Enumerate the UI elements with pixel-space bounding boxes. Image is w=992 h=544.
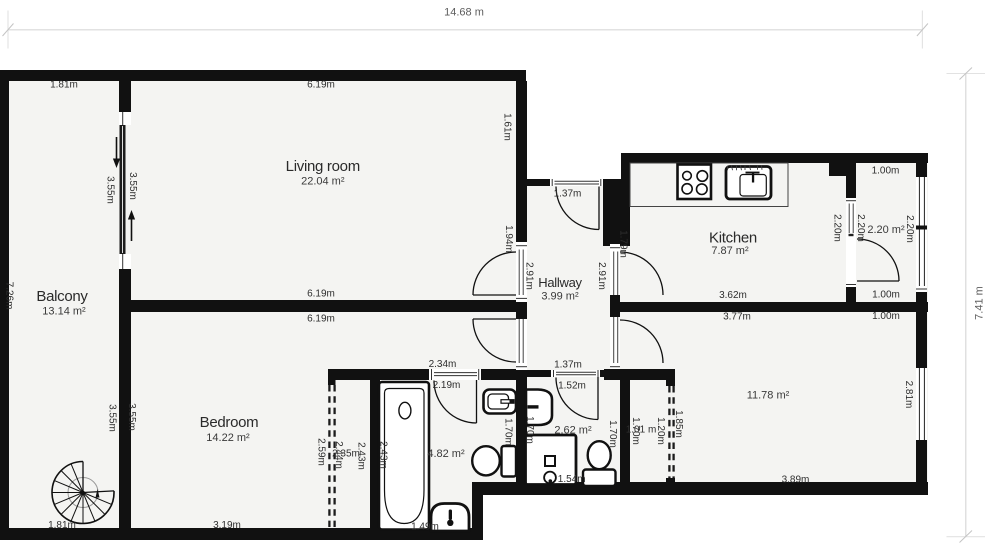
svg-text:1.54m: 1.54m (558, 474, 586, 485)
svg-text:2.91m: 2.91m (596, 262, 607, 290)
svg-text:1.79m: 1.79m (618, 230, 629, 258)
svg-text:1.52m: 1.52m (558, 381, 586, 392)
svg-text:1.70m: 1.70m (503, 418, 514, 446)
svg-text:1.70m: 1.70m (607, 420, 618, 448)
svg-text:3.55m: 3.55m (126, 403, 137, 431)
svg-text:6.19m: 6.19m (307, 314, 335, 325)
svg-text:2.34m: 2.34m (429, 359, 457, 370)
svg-text:3.55m: 3.55m (105, 176, 116, 204)
svg-text:2.20 m²: 2.20 m² (867, 224, 905, 236)
svg-text:Hallway: Hallway (538, 275, 582, 290)
svg-text:2.59m: 2.59m (316, 438, 327, 466)
svg-text:11.78 m²: 11.78 m² (747, 390, 790, 402)
svg-text:Bedroom: Bedroom (200, 414, 259, 431)
svg-text:6.19m: 6.19m (307, 289, 335, 300)
svg-text:3.89m: 3.89m (782, 475, 810, 486)
svg-text:2.20m: 2.20m (832, 214, 843, 242)
svg-text:1.81m: 1.81m (50, 80, 78, 91)
svg-text:22.04 m²: 22.04 m² (301, 176, 345, 188)
svg-text:3.62m: 3.62m (719, 290, 747, 301)
svg-text:7.26m: 7.26m (4, 282, 15, 310)
svg-text:1.70m: 1.70m (524, 416, 535, 444)
svg-text:7.41 m: 7.41 m (974, 286, 986, 320)
svg-text:1.00m: 1.00m (872, 290, 900, 301)
svg-text:3.99 m²: 3.99 m² (541, 291, 579, 303)
svg-text:2.91m: 2.91m (524, 262, 535, 290)
svg-text:2.43m: 2.43m (356, 442, 367, 470)
svg-text:2.43m: 2.43m (378, 441, 389, 469)
svg-text:7.87 m²: 7.87 m² (711, 245, 749, 257)
svg-text:2.81m: 2.81m (903, 381, 914, 409)
svg-text:1.49m: 1.49m (411, 522, 439, 533)
svg-text:14.68 m: 14.68 m (444, 7, 484, 19)
svg-text:1.00m: 1.00m (872, 311, 900, 322)
svg-text:1.81m: 1.81m (48, 520, 76, 531)
svg-text:1.94m: 1.94m (503, 225, 514, 253)
svg-text:6.19m: 6.19m (307, 80, 335, 91)
svg-text:1.20m: 1.20m (655, 417, 666, 445)
svg-text:3.19m: 3.19m (213, 520, 241, 531)
svg-text:2.20m: 2.20m (904, 215, 915, 243)
svg-text:3.77m: 3.77m (723, 311, 751, 322)
svg-text:1.70m: 1.70m (630, 417, 641, 445)
svg-text:14.22 m²: 14.22 m² (206, 432, 250, 444)
svg-text:1.37m: 1.37m (554, 189, 582, 200)
svg-text:13.14 m²: 13.14 m² (42, 306, 86, 318)
svg-text:1.37m: 1.37m (554, 360, 582, 371)
svg-text:4.82 m²: 4.82 m² (427, 448, 465, 460)
svg-text:Balcony: Balcony (36, 288, 88, 305)
svg-text:Kitchen: Kitchen (709, 230, 757, 247)
svg-text:1.00m: 1.00m (872, 165, 900, 176)
svg-text:1.61m: 1.61m (502, 113, 513, 141)
svg-text:2.44m: 2.44m (333, 441, 344, 469)
svg-text:2.20m: 2.20m (855, 214, 866, 242)
svg-text:3.55m: 3.55m (107, 404, 118, 432)
svg-text:1.85m: 1.85m (673, 410, 684, 438)
svg-text:2.62 m²: 2.62 m² (554, 425, 592, 437)
svg-text:2.19m: 2.19m (433, 380, 461, 391)
svg-text:3.55m: 3.55m (127, 172, 138, 200)
svg-text:Living room: Living room (286, 158, 360, 175)
